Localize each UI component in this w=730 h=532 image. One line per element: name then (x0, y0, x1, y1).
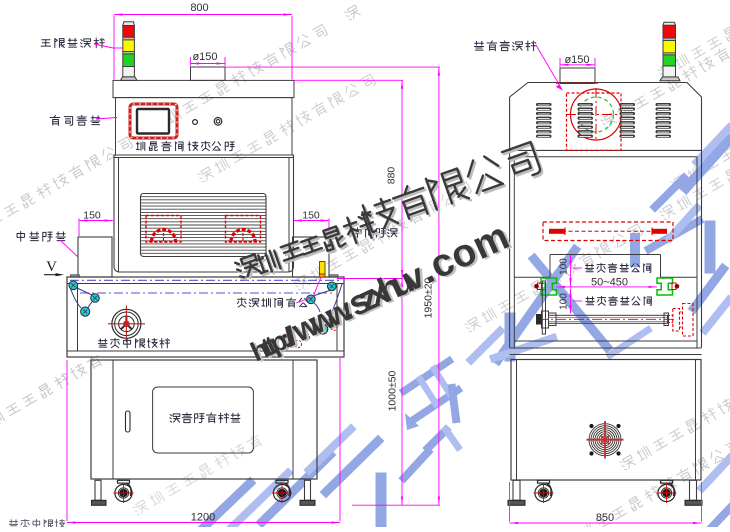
svg-text:1000±50: 1000±50 (387, 370, 399, 411)
svg-text:880: 880 (386, 167, 398, 185)
svg-text:800: 800 (190, 2, 208, 14)
svg-text:V: V (46, 259, 57, 275)
svg-text:ø150: ø150 (192, 51, 217, 63)
svg-text:150: 150 (302, 210, 320, 222)
svg-text:100: 100 (559, 293, 570, 310)
svg-text:850: 850 (596, 512, 614, 524)
svg-text:100: 100 (559, 258, 570, 275)
svg-text:1200: 1200 (191, 512, 215, 524)
